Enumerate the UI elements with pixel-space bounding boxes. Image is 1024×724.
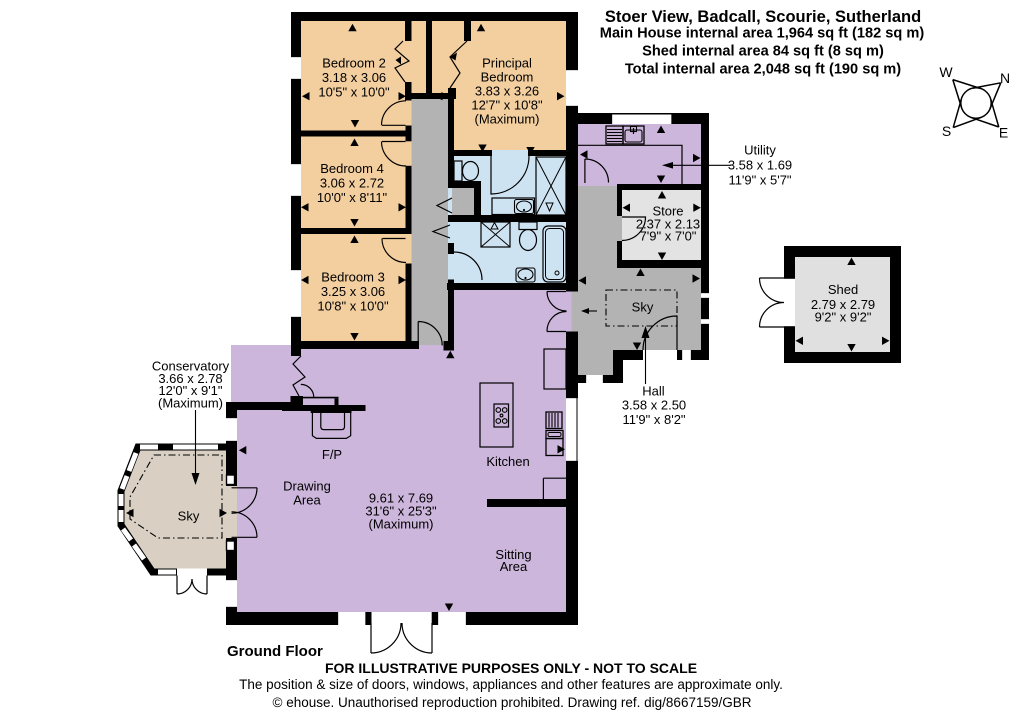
svg-text:Ground Floor: Ground Floor bbox=[227, 643, 323, 660]
svg-text:F/P: F/P bbox=[322, 447, 342, 462]
svg-text:3.18 x 3.06: 3.18 x 3.06 bbox=[322, 70, 386, 85]
svg-text:Hall: Hall bbox=[642, 384, 665, 399]
svg-text:E: E bbox=[999, 125, 1008, 141]
svg-text:10'8" x 10'0": 10'8" x 10'0" bbox=[317, 299, 389, 314]
svg-text:The position & size of doors,: The position & size of doors, windows, a… bbox=[239, 677, 783, 692]
svg-text:© ehouse. Unauthorised reprodu: © ehouse. Unauthorised reproduction proh… bbox=[273, 695, 752, 710]
svg-text:11'9" x 8'2": 11'9" x 8'2" bbox=[622, 412, 685, 427]
svg-text:W: W bbox=[939, 64, 953, 80]
svg-text:(Maximum): (Maximum) bbox=[475, 112, 540, 127]
svg-text:11'9" x 5'7": 11'9" x 5'7" bbox=[728, 173, 791, 188]
svg-text:7'9" x 7'0": 7'9" x 7'0" bbox=[640, 229, 697, 244]
svg-text:3.58 x 1.69: 3.58 x 1.69 bbox=[728, 158, 792, 173]
svg-text:Bedroom: Bedroom bbox=[481, 70, 534, 85]
svg-text:Area: Area bbox=[293, 493, 321, 508]
svg-text:Sky: Sky bbox=[632, 300, 654, 315]
svg-text:Bedroom 4: Bedroom 4 bbox=[320, 161, 384, 176]
svg-text:Kitchen: Kitchen bbox=[486, 454, 529, 469]
svg-text:Area: Area bbox=[500, 559, 528, 574]
svg-text:Total internal area 2,048 sq f: Total internal area 2,048 sq ft (190 sq … bbox=[625, 62, 901, 78]
svg-text:Drawing: Drawing bbox=[283, 479, 331, 494]
svg-text:10'5" x 10'0": 10'5" x 10'0" bbox=[318, 85, 390, 100]
svg-text:3.25 x 3.06: 3.25 x 3.06 bbox=[321, 284, 385, 299]
svg-text:Shed: Shed bbox=[828, 282, 858, 297]
svg-text:Utility: Utility bbox=[744, 143, 776, 158]
svg-text:Stoer View, Badcall, Scourie,: Stoer View, Badcall, Scourie, Sutherland bbox=[605, 8, 921, 26]
svg-text:(Maximum): (Maximum) bbox=[158, 396, 223, 411]
svg-text:Shed internal area 84 sq ft (8: Shed internal area 84 sq ft (8 sq m) bbox=[642, 44, 884, 60]
svg-text:Principal: Principal bbox=[482, 56, 532, 71]
svg-text:S: S bbox=[942, 123, 951, 139]
svg-text:3.83 x 3.26: 3.83 x 3.26 bbox=[475, 84, 539, 99]
svg-text:3.58 x 2.50: 3.58 x 2.50 bbox=[622, 398, 686, 413]
svg-text:Sky: Sky bbox=[178, 509, 200, 524]
svg-text:N: N bbox=[1000, 70, 1010, 86]
svg-text:FOR ILLUSTRATIVE PURPOSES ONLY: FOR ILLUSTRATIVE PURPOSES ONLY - NOT TO … bbox=[325, 660, 697, 676]
svg-text:Bedroom 2: Bedroom 2 bbox=[322, 56, 386, 71]
svg-text:9'2" x 9'2": 9'2" x 9'2" bbox=[815, 310, 872, 325]
svg-text:12'7" x 10'8": 12'7" x 10'8" bbox=[471, 98, 543, 113]
svg-text:10'0" x 8'11": 10'0" x 8'11" bbox=[317, 190, 388, 205]
svg-text:(Maximum): (Maximum) bbox=[369, 517, 434, 532]
svg-text:Main House internal area 1,964: Main House internal area 1,964 sq ft (18… bbox=[600, 26, 925, 42]
svg-text:Bedroom 3: Bedroom 3 bbox=[321, 270, 385, 285]
svg-text:3.06 x 2.72: 3.06 x 2.72 bbox=[320, 176, 384, 191]
